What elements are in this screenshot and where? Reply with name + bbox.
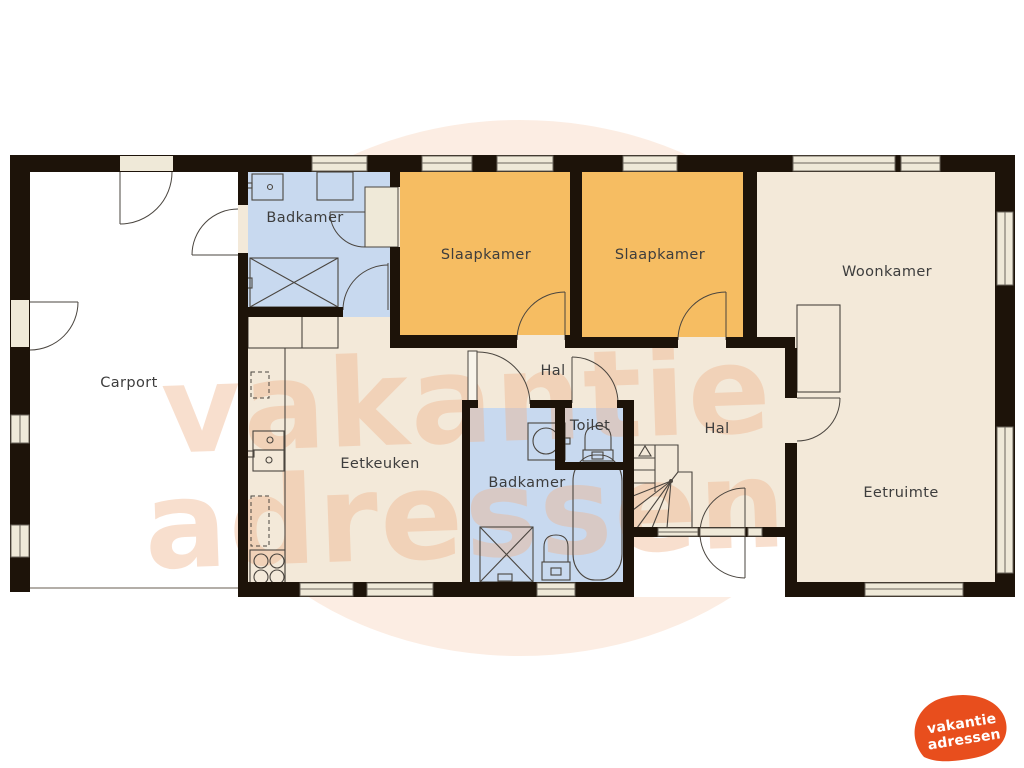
room-label-woonkamer: Woonkamer bbox=[842, 264, 932, 280]
window bbox=[422, 156, 472, 171]
floorplan-image: vakantie adressen bbox=[0, 0, 1024, 768]
window bbox=[793, 156, 895, 171]
window bbox=[901, 156, 940, 171]
window bbox=[367, 583, 433, 596]
room-label-eetkeuken: Eetkeuken bbox=[340, 456, 419, 472]
brand-logo: vakantie adressen bbox=[915, 695, 1007, 761]
window bbox=[623, 156, 677, 171]
room-label-eetruimte: Eetruimte bbox=[863, 485, 938, 501]
window bbox=[312, 156, 367, 171]
window bbox=[997, 427, 1013, 573]
hal-exterior-door bbox=[700, 528, 745, 536]
room-label-hal-1: Hal bbox=[540, 363, 565, 379]
room-label-hal-2: Hal bbox=[704, 421, 729, 437]
room-label-badkamer-2: Badkamer bbox=[488, 475, 565, 491]
window bbox=[11, 525, 29, 557]
room-label-toilet: Toilet bbox=[569, 418, 610, 434]
window bbox=[11, 415, 29, 443]
room-label-slaapkamer-1: Slaapkamer bbox=[441, 247, 531, 263]
carport-door-opening bbox=[120, 156, 173, 171]
room-label-slaapkamer-2: Slaapkamer bbox=[615, 247, 705, 263]
carport-side-door-opening bbox=[11, 300, 29, 347]
room-label-carport: Carport bbox=[100, 375, 158, 391]
window bbox=[537, 583, 575, 596]
window bbox=[300, 583, 353, 596]
closet-nook bbox=[365, 187, 398, 247]
window bbox=[865, 583, 963, 596]
window bbox=[497, 156, 553, 171]
window bbox=[658, 528, 698, 536]
room-label-badkamer-1: Badkamer bbox=[266, 210, 343, 226]
window bbox=[748, 528, 762, 536]
window bbox=[997, 212, 1013, 285]
